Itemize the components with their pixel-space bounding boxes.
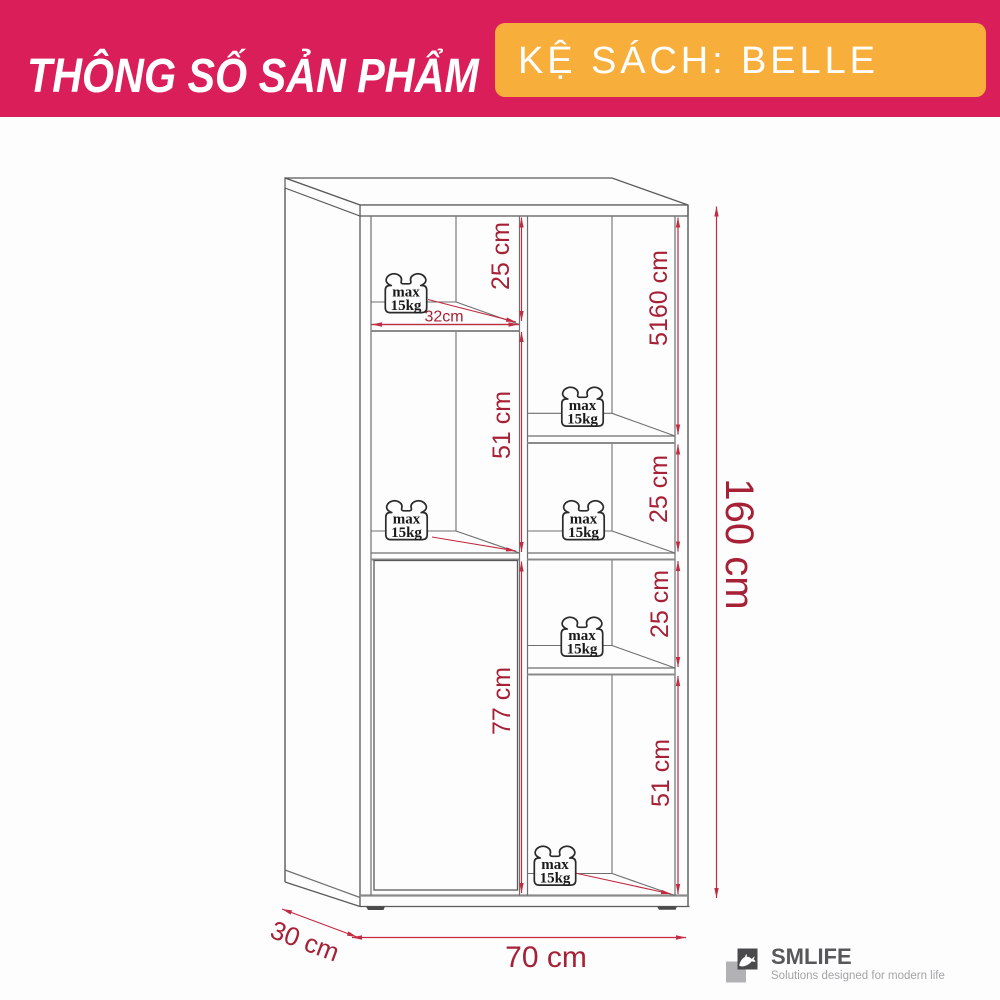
svg-text:51 cm: 51 cm bbox=[488, 391, 516, 459]
svg-text:25 cm: 25 cm bbox=[487, 222, 515, 290]
svg-text:77 cm: 77 cm bbox=[488, 667, 516, 735]
svg-text:32cm: 32cm bbox=[424, 309, 463, 326]
svg-text:5160 cm: 5160 cm bbox=[645, 250, 673, 346]
svg-text:25 cm: 25 cm bbox=[646, 570, 674, 638]
svg-text:160 cm: 160 cm bbox=[717, 478, 761, 609]
svg-text:30 cm: 30 cm bbox=[267, 915, 344, 968]
svg-text:25 cm: 25 cm bbox=[645, 455, 673, 523]
svg-text:70 cm: 70 cm bbox=[505, 941, 587, 974]
svg-text:51 cm: 51 cm bbox=[647, 739, 675, 807]
